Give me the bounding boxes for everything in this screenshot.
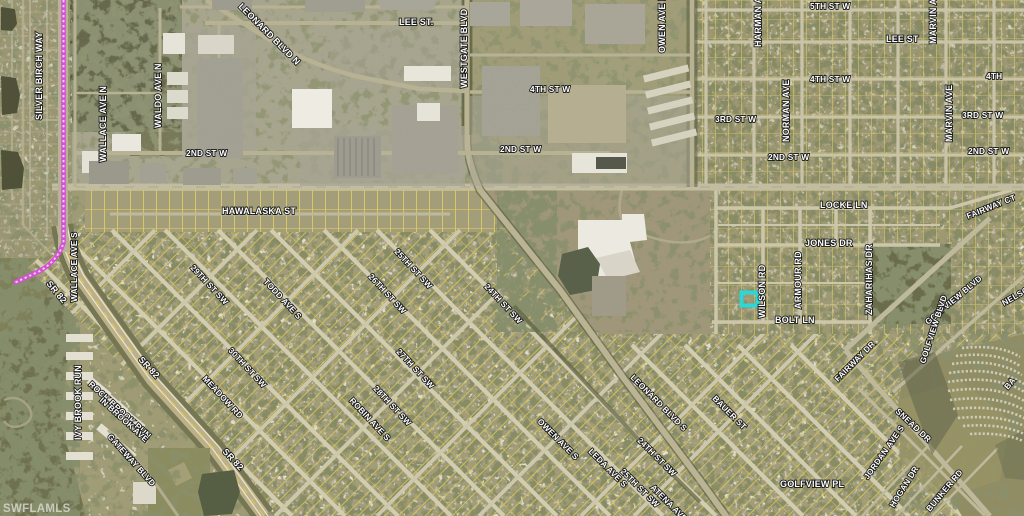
- svg-text:4TH: 4TH: [986, 71, 1002, 81]
- svg-text:OWEN AVE N: OWEN AVE N: [657, 0, 667, 53]
- svg-text:LOCKE LN: LOCKE LN: [820, 200, 868, 210]
- svg-text:SILVER BIRCH WAY: SILVER BIRCH WAY: [34, 32, 44, 120]
- svg-text:4TH ST W: 4TH ST W: [530, 84, 570, 94]
- svg-text:ARMOUR RD: ARMOUR RD: [793, 251, 803, 309]
- svg-text:HARMAN AVE: HARMAN AVE: [753, 0, 763, 47]
- svg-text:BOLT LN: BOLT LN: [775, 315, 815, 325]
- svg-text:SWFLAMLS: SWFLAMLS: [3, 503, 71, 515]
- svg-text:WALLACE AVE S: WALLACE AVE S: [69, 232, 79, 302]
- svg-text:NORMAN AVE: NORMAN AVE: [781, 80, 791, 143]
- svg-text:5TH ST W: 5TH ST W: [810, 1, 850, 11]
- svg-text:IVY BROOK RUN: IVY BROOK RUN: [73, 365, 83, 440]
- svg-text:2ND ST W: 2ND ST W: [968, 146, 1009, 156]
- svg-text:2ND ST W: 2ND ST W: [186, 148, 227, 158]
- svg-text:4TH ST W: 4TH ST W: [810, 74, 850, 84]
- svg-text:WALLACE AVE N: WALLACE AVE N: [98, 86, 108, 162]
- svg-text:WESTGATE BLVD: WESTGATE BLVD: [459, 8, 469, 88]
- svg-text:LEE ST: LEE ST: [886, 34, 919, 44]
- svg-text:WILSON RD: WILSON RD: [757, 264, 767, 318]
- svg-text:LEE ST.: LEE ST.: [399, 17, 433, 27]
- svg-text:WALDO AVE N: WALDO AVE N: [153, 63, 163, 128]
- svg-text:2ND ST W: 2ND ST W: [768, 152, 809, 162]
- svg-text:MARVIN AVE: MARVIN AVE: [928, 0, 938, 44]
- svg-text:ZAHARIHAS DR: ZAHARIHAS DR: [864, 244, 874, 315]
- svg-text:JONES DR: JONES DR: [805, 238, 853, 248]
- svg-text:GOLFVIEW PL: GOLFVIEW PL: [780, 479, 845, 489]
- svg-text:MARVIN AVE: MARVIN AVE: [944, 85, 954, 142]
- svg-text:3RD ST W: 3RD ST W: [962, 110, 1003, 120]
- svg-text:HAWALASKA ST: HAWALASKA ST: [222, 206, 296, 216]
- svg-text:3RD ST W: 3RD ST W: [715, 114, 756, 124]
- svg-text:2ND ST W: 2ND ST W: [500, 144, 541, 154]
